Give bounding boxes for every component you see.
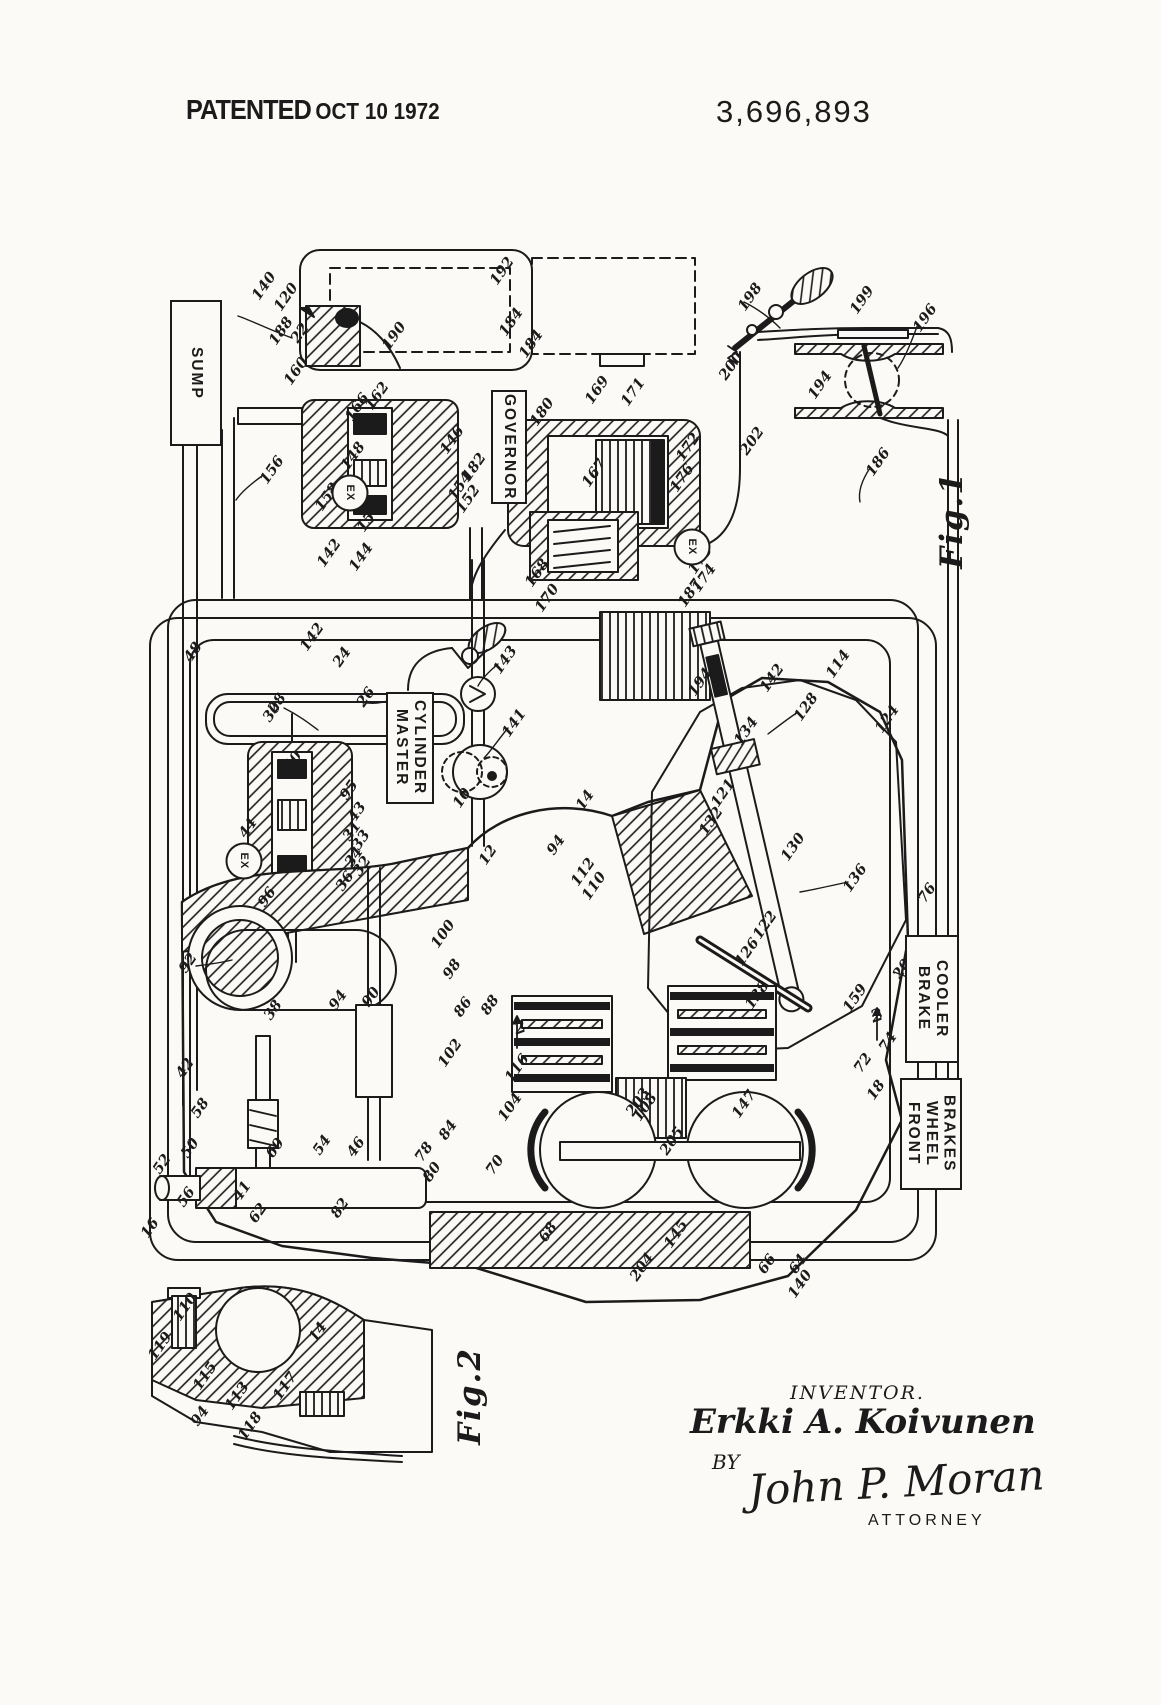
ref-numeral-44: 44 [235,815,261,841]
ref-numeral-138: 138 [741,978,772,1013]
ref-numeral-42: 42 [172,1055,198,1081]
sump-label-box: SUMP [170,300,222,446]
ref-numeral-12: 12 [475,842,501,868]
ref-numeral-128: 128 [790,690,821,725]
ref-numeral-72: 72 [850,1050,876,1076]
exhaust-port-1: EX [332,475,369,512]
ref-numeral-52: 52 [149,1151,175,1177]
ref-numeral-10: 10 [449,785,475,811]
ref-numeral-38: 38 [260,997,286,1023]
exhaust-port-3: EX [226,843,263,880]
ref-numeral-142: 142 [756,661,787,696]
ref-numeral-50: 50 [177,1135,203,1161]
ref-numeral-146: 146 [436,423,467,458]
section-mark-2: 2 [868,1005,886,1028]
brake-cooler-label-box: BRAKE COOLER [905,935,959,1063]
exhaust-port-label: EX [686,539,698,556]
ref-numeral-126: 126 [731,935,762,970]
ref-numeral-118: 118 [234,1409,265,1444]
ref-numeral-119: 119 [144,1329,175,1364]
patent-sheet: PATENTEDOCT 10 1972 3,696,893 2214012018… [0,0,1161,1705]
ref-numeral-94: 94 [543,832,569,858]
ref-numeral-110: 110 [169,1290,200,1325]
master-cylinder-label: MASTER CYLINDER [392,700,428,795]
ref-numeral-130: 130 [777,830,808,865]
ref-numeral-48: 48 [180,639,206,665]
ref-numeral-92: 92 [175,950,201,976]
governor-label-box: GOVERNOR [491,390,527,504]
ref-numeral-116: 116 [501,1051,532,1086]
ref-numeral-60: 60 [262,1135,288,1161]
ref-numeral-56: 56 [173,1184,199,1210]
ref-numeral-74: 74 [875,1029,901,1055]
governor-label: GOVERNOR [500,394,518,500]
ref-numeral-90: 90 [358,984,384,1010]
ref-numeral-172: 172 [672,430,703,465]
ref-numeral-205: 205 [656,1124,687,1159]
ref-numeral-68: 68 [535,1219,561,1245]
ref-numeral-176: 176 [666,461,697,496]
ref-numeral-147: 147 [728,1087,759,1122]
figure-1-label: Fig.1 [934,471,970,569]
ref-numeral-70: 70 [482,1152,508,1178]
ref-numeral-95: 95 [336,777,362,803]
exhaust-port-label: EX [344,485,356,502]
ref-numeral-198: 198 [734,280,765,315]
ref-numeral-169: 169 [581,373,612,408]
figure-2-label: Fig.2 [452,1347,488,1445]
ref-numeral-100: 100 [427,917,458,952]
ref-numeral-148: 148 [337,439,368,474]
ref-numeral-62: 62 [245,1200,271,1226]
ref-numeral-86: 86 [450,994,476,1020]
ref-numeral-40: 40 [280,748,306,774]
ref-numeral-113: 113 [221,1379,252,1414]
ref-numeral-180: 180 [526,395,557,430]
ref-numeral-84: 84 [435,1117,461,1143]
ref-numeral-41: 41 [229,1178,255,1204]
ref-numeral-124: 124 [871,702,902,737]
section-mark-2: 2 [511,1017,529,1040]
ref-numeral-194: 194 [684,665,715,700]
ref-numeral-145: 145 [660,1217,691,1252]
ref-numeral-122: 122 [749,908,780,943]
front-wheel-brakes-label: FRONT WHEEL BRAKES [904,1095,957,1172]
ref-numeral-140: 140 [784,1267,815,1302]
ref-numeral-117: 117 [269,1369,300,1404]
ref-numeral-204: 204 [626,1250,657,1285]
ref-numeral-66: 66 [754,1251,780,1277]
ref-numeral-192: 192 [486,254,517,289]
ref-numeral-156: 156 [256,453,287,488]
ref-numeral-202: 202 [736,424,767,459]
ref-numeral-134: 134 [730,714,761,749]
annotation-layer: 2214012018819016016616215615814814618215… [0,0,1161,1705]
ref-numeral-58: 58 [187,1095,213,1121]
ref-numeral-94: 94 [325,987,351,1013]
ref-numeral-88: 88 [477,992,503,1018]
ref-numeral-160: 160 [280,354,311,389]
ref-numeral-171: 171 [617,375,648,410]
ref-numeral-186: 186 [862,445,893,480]
exhaust-port-label: EX [238,853,250,870]
ref-numeral-167: 167 [578,456,609,491]
ref-numeral-144: 144 [345,540,376,575]
ref-numeral-184: 184 [515,327,546,362]
brake-cooler-label: BRAKE COOLER [914,960,950,1038]
ref-numeral-143: 143 [489,643,520,678]
ref-numeral-46: 46 [343,1134,369,1160]
ref-numeral-142: 142 [313,536,344,571]
front-wheel-brakes-label-box: FRONT WHEEL BRAKES [900,1078,962,1190]
ref-numeral-14: 14 [305,1319,331,1345]
ref-numeral-82: 82 [327,1195,353,1221]
ref-numeral-24: 24 [329,644,355,670]
ref-numeral-16: 16 [137,1215,163,1241]
ref-numeral-136: 136 [839,861,870,896]
ref-numeral-14: 14 [572,787,598,813]
ref-numeral-190: 190 [378,319,409,354]
ref-numeral-98: 98 [439,956,465,982]
ref-numeral-26: 26 [353,684,379,710]
ref-numeral-115: 115 [189,1359,220,1394]
ref-numeral-94: 94 [187,1403,213,1429]
ref-numeral-54: 54 [309,1132,335,1158]
sump-label: SUMP [187,347,205,400]
ref-numeral-196: 196 [909,301,940,336]
ref-numeral-76: 76 [914,880,940,906]
ref-numeral-141: 141 [498,706,529,741]
exhaust-port-2: EX [674,529,711,566]
ref-numeral-18: 18 [863,1077,889,1103]
ref-numeral-104: 104 [494,1090,525,1125]
ref-numeral-184: 184 [495,305,526,340]
ref-numeral-96: 96 [254,884,280,910]
master-cylinder-label-box: MASTER CYLINDER [386,692,434,804]
ref-numeral-102: 102 [434,1036,465,1071]
ref-numeral-114: 114 [822,647,853,682]
ref-numeral-194: 194 [804,368,835,403]
ref-numeral-199: 199 [846,283,877,318]
ref-numeral-142: 142 [296,620,327,655]
ref-numeral-159: 159 [839,981,870,1016]
ref-numeral-200: 200 [715,349,746,384]
